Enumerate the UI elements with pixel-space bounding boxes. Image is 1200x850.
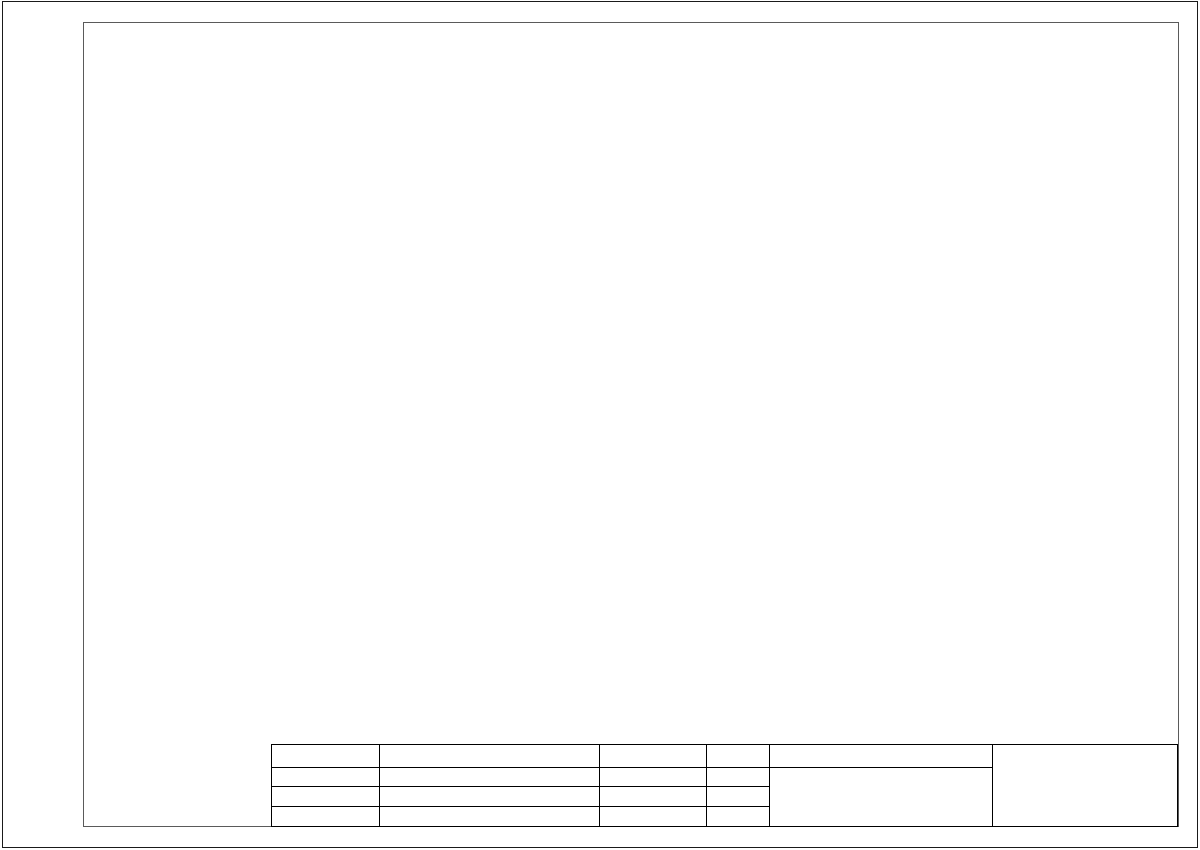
drawing-svg bbox=[0, 0, 1200, 850]
customer-row-label bbox=[272, 768, 380, 787]
empty-cell bbox=[707, 807, 770, 826]
empty-cell bbox=[380, 807, 600, 826]
date-column-header bbox=[707, 745, 770, 768]
signature-column-header bbox=[600, 745, 707, 768]
title-block-table bbox=[271, 744, 1178, 827]
empty-cell bbox=[272, 807, 380, 826]
company-info-cell bbox=[993, 745, 1177, 826]
empty-cell bbox=[380, 745, 600, 768]
manager-value-cell bbox=[380, 787, 600, 807]
manager-row-label bbox=[272, 787, 380, 807]
empty-cell bbox=[600, 807, 707, 826]
customer-date-cell bbox=[707, 768, 770, 787]
empty-cell bbox=[272, 745, 380, 768]
manager-signature-cell bbox=[600, 787, 707, 807]
manager-date-cell bbox=[707, 787, 770, 807]
furniture-set-body-cell bbox=[770, 768, 993, 826]
customer-value-cell bbox=[380, 768, 600, 787]
blueprint-page bbox=[0, 0, 1200, 850]
furniture-set-header bbox=[770, 745, 993, 768]
customer-signature-cell bbox=[600, 768, 707, 787]
